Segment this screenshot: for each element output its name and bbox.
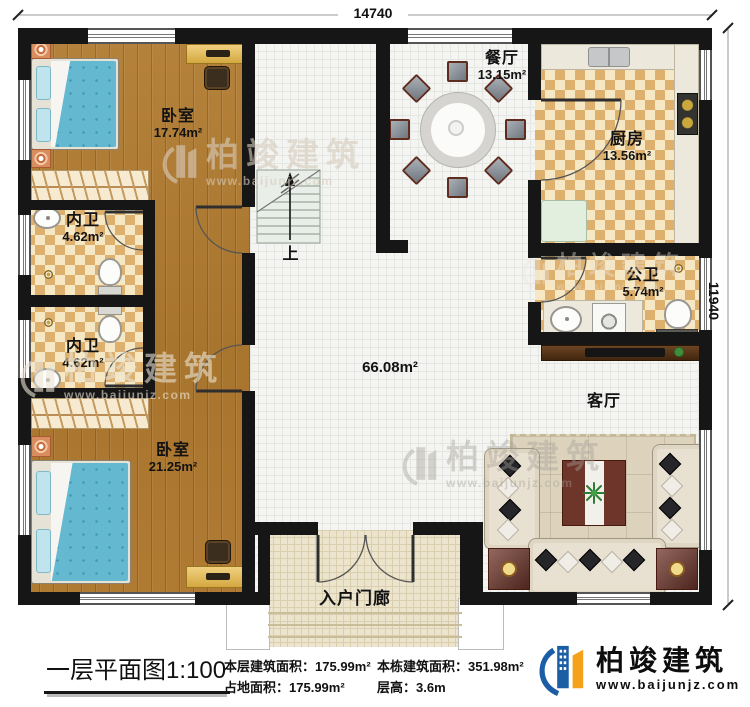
room-label-porch: 入户门廊 bbox=[295, 589, 415, 608]
dimension-top: 14740 bbox=[338, 5, 408, 21]
desk-chair bbox=[204, 66, 230, 90]
fridge bbox=[541, 200, 587, 242]
company-logo-icon bbox=[536, 640, 588, 698]
pillow bbox=[36, 66, 51, 100]
bathroom-sink bbox=[550, 306, 582, 333]
dimension-right: 11940 bbox=[706, 268, 722, 334]
pillow bbox=[36, 471, 51, 515]
wall bbox=[650, 592, 712, 605]
wall bbox=[175, 28, 408, 44]
wall bbox=[258, 535, 270, 605]
room-label-kitchen: 厨房 13.56m² bbox=[577, 131, 677, 163]
dining-table-center bbox=[448, 120, 464, 136]
wall bbox=[255, 522, 318, 535]
info-storey-height: 层高：3.6m bbox=[377, 677, 524, 698]
info-column-1: 本层建筑面积：175.99m² 占地面积：175.99m² bbox=[224, 656, 371, 698]
porch-step-line bbox=[268, 612, 462, 614]
toilet bbox=[664, 299, 692, 329]
room-label-bedroom-1: 卧室 17.74m² bbox=[128, 108, 228, 140]
porch-step-line bbox=[268, 636, 462, 638]
wall bbox=[376, 240, 408, 253]
wall bbox=[699, 100, 712, 258]
floor-drain bbox=[44, 270, 53, 279]
toilet-tank bbox=[98, 306, 122, 315]
porch-step-line bbox=[268, 624, 462, 626]
desk-items bbox=[206, 50, 231, 56]
bed-double bbox=[31, 58, 119, 150]
room-label-public-bath: 公卫 5.74m² bbox=[593, 267, 693, 299]
hall-area-label: 66.08m² bbox=[340, 360, 440, 377]
wall bbox=[195, 592, 258, 605]
plan-title-text: 一层平面图 bbox=[46, 657, 166, 684]
room-label-dining: 餐厅 13.15m² bbox=[452, 50, 552, 82]
desk bbox=[186, 566, 250, 588]
blanket bbox=[51, 463, 81, 581]
wall bbox=[18, 28, 31, 80]
coffee-table bbox=[562, 460, 626, 526]
wall bbox=[18, 200, 155, 210]
window bbox=[18, 215, 31, 275]
room-label-living: 客厅 bbox=[564, 393, 644, 411]
nightstand bbox=[31, 436, 51, 457]
blanket bbox=[51, 61, 81, 147]
plan-title: 一层平面图1:100 bbox=[44, 650, 230, 694]
bed-double bbox=[31, 460, 131, 584]
side-table bbox=[488, 548, 530, 590]
porch-side-landing bbox=[458, 598, 504, 650]
wall bbox=[18, 592, 80, 605]
window bbox=[699, 430, 712, 550]
dining-chair bbox=[505, 119, 526, 140]
pillow bbox=[36, 108, 51, 142]
company-name: 柏竣建筑 bbox=[596, 647, 740, 675]
desk-chair bbox=[205, 540, 231, 564]
wall bbox=[242, 253, 255, 345]
company-logo: 柏竣建筑 www.baijunjz.com bbox=[536, 640, 740, 698]
plan-scale: 1:100 bbox=[166, 657, 226, 684]
wall bbox=[483, 592, 577, 605]
info-column-2: 本栋建筑面积：351.98m² 层高：3.6m bbox=[377, 656, 524, 698]
info-floor-area: 本层建筑面积：175.99m² bbox=[224, 656, 371, 677]
wall bbox=[376, 28, 390, 253]
wardrobe bbox=[31, 170, 149, 201]
window bbox=[577, 592, 650, 605]
company-url: www.baijunjz.com bbox=[596, 677, 740, 692]
info-total-area: 本栋建筑面积：351.98m² bbox=[377, 656, 524, 677]
wall bbox=[242, 391, 255, 592]
window bbox=[408, 28, 512, 44]
side-table bbox=[656, 548, 698, 590]
toilet-tank bbox=[98, 286, 122, 295]
wall bbox=[242, 28, 255, 207]
decor-plant bbox=[672, 346, 686, 358]
kitchen-sink bbox=[588, 47, 630, 67]
wall bbox=[512, 28, 712, 44]
dining-chair bbox=[389, 119, 410, 140]
wall bbox=[528, 332, 712, 345]
plant-icon bbox=[582, 481, 606, 505]
room-label-bathroom-1: 内卫 4.62m² bbox=[33, 212, 133, 244]
pillow bbox=[36, 529, 51, 573]
room-label-bedroom-2: 卧室 21.25m² bbox=[123, 442, 223, 474]
porch-side-landing bbox=[226, 598, 270, 650]
window bbox=[18, 445, 31, 535]
floor-drain bbox=[44, 318, 53, 327]
desk-items bbox=[206, 573, 231, 580]
room-label-bathroom-2: 内卫 4.62m² bbox=[33, 338, 133, 370]
wall bbox=[460, 535, 483, 605]
dining-chair bbox=[447, 177, 468, 198]
window bbox=[18, 80, 31, 160]
wall bbox=[18, 295, 155, 307]
toilet bbox=[98, 258, 122, 286]
kitchen-counter-right bbox=[674, 44, 699, 244]
gas-stove bbox=[677, 93, 698, 135]
window bbox=[18, 320, 31, 378]
wall bbox=[699, 330, 712, 430]
window bbox=[88, 28, 175, 44]
window bbox=[80, 592, 195, 605]
wardrobe bbox=[31, 398, 149, 429]
stairs-up-label: 上 bbox=[276, 246, 306, 264]
wall bbox=[18, 388, 155, 398]
window bbox=[699, 50, 712, 100]
desk bbox=[186, 44, 250, 64]
wall bbox=[413, 522, 483, 535]
nightstand bbox=[31, 149, 51, 168]
info-land-area: 占地面积：175.99m² bbox=[224, 677, 371, 698]
tv bbox=[585, 348, 665, 357]
floor-plan: 卧室 17.74m² 内卫 4.62m² 内卫 4.62m² 卧室 21.25m… bbox=[0, 0, 750, 707]
wall bbox=[699, 28, 712, 50]
wall bbox=[528, 243, 712, 256]
